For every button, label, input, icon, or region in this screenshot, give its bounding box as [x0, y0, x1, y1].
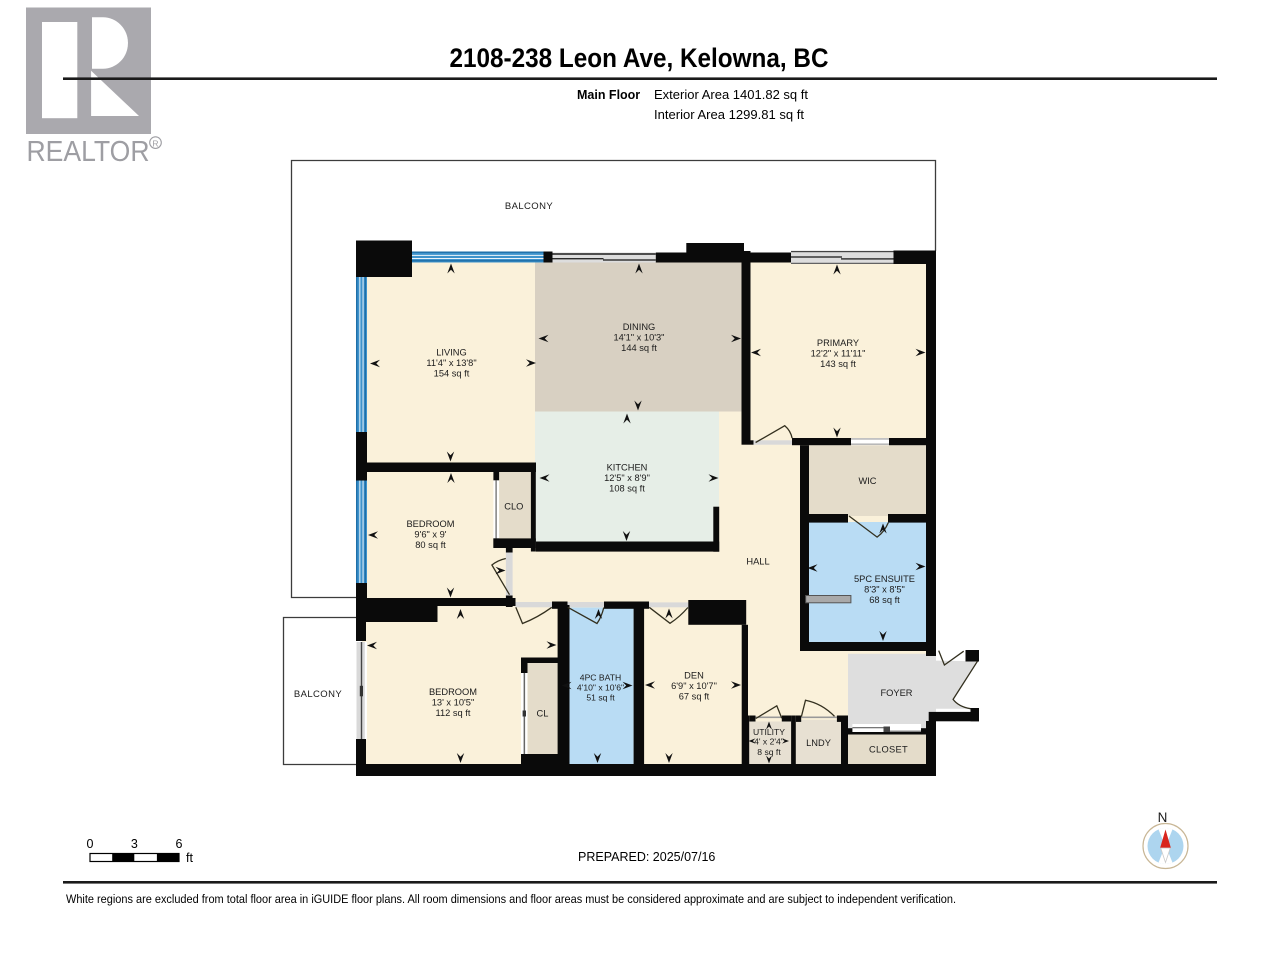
svg-text:PREPARED: 2025/07/16: PREPARED: 2025/07/16	[578, 850, 715, 864]
svg-text:9'6" x 9': 9'6" x 9'	[414, 530, 446, 540]
svg-text:ft: ft	[186, 851, 193, 865]
svg-text:Main Floor: Main Floor	[577, 88, 640, 102]
svg-text:CL: CL	[537, 709, 549, 719]
svg-text:N: N	[1158, 810, 1168, 825]
svg-text:LIVING: LIVING	[436, 348, 466, 358]
svg-text:0: 0	[87, 837, 94, 851]
svg-text:8'3" x 8'5": 8'3" x 8'5"	[864, 584, 905, 594]
svg-text:KITCHEN: KITCHEN	[607, 463, 648, 473]
svg-text:REALTOR: REALTOR	[27, 136, 150, 168]
svg-text:LNDY: LNDY	[806, 738, 831, 748]
svg-text:FOYER: FOYER	[880, 688, 912, 698]
svg-text:BEDROOM: BEDROOM	[429, 687, 477, 697]
svg-text:Exterior Area 1401.82 sq ft: Exterior Area 1401.82 sq ft	[654, 88, 809, 102]
svg-text:6'9" x 10'7": 6'9" x 10'7"	[671, 681, 717, 691]
svg-text:4' x 2'4": 4' x 2'4"	[754, 737, 784, 747]
svg-text:CLO: CLO	[504, 502, 523, 512]
svg-text:CLOSET: CLOSET	[869, 745, 908, 755]
svg-text:4PC BATH: 4PC BATH	[580, 673, 621, 683]
svg-text:DINING: DINING	[623, 322, 656, 332]
svg-text:51 sq ft: 51 sq ft	[586, 693, 615, 703]
svg-text:80 sq ft: 80 sq ft	[415, 540, 446, 550]
svg-text:8 sq ft: 8 sq ft	[757, 747, 781, 757]
svg-text:143 sq ft: 143 sq ft	[820, 359, 856, 369]
svg-text:6: 6	[176, 837, 183, 851]
svg-text:R: R	[152, 139, 158, 149]
svg-text:12'5" x 8'9": 12'5" x 8'9"	[604, 473, 650, 483]
svg-text:14'1" x 10'3": 14'1" x 10'3"	[614, 333, 665, 343]
svg-text:154 sq ft: 154 sq ft	[434, 369, 470, 379]
svg-text:Interior Area 1299.81 sq ft: Interior Area 1299.81 sq ft	[654, 108, 805, 122]
svg-text:13' x 10'5": 13' x 10'5"	[432, 698, 475, 708]
svg-text:White regions are excluded fro: White regions are excluded from total fl…	[66, 892, 956, 906]
svg-text:68 sq ft: 68 sq ft	[869, 595, 900, 605]
svg-text:108 sq ft: 108 sq ft	[609, 484, 645, 494]
svg-text:112 sq ft: 112 sq ft	[436, 708, 471, 718]
svg-text:BALCONY: BALCONY	[294, 689, 342, 700]
svg-text:2108-238 Leon Ave, Kelowna, BC: 2108-238 Leon Ave, Kelowna, BC	[450, 43, 829, 73]
svg-text:3: 3	[131, 837, 138, 851]
svg-text:12'2" x 11'11": 12'2" x 11'11"	[811, 349, 866, 359]
svg-text:67 sq ft: 67 sq ft	[679, 692, 710, 702]
svg-text:5PC ENSUITE: 5PC ENSUITE	[854, 574, 915, 584]
svg-text:BALCONY: BALCONY	[505, 201, 553, 212]
svg-text:BEDROOM: BEDROOM	[406, 519, 454, 529]
svg-text:144 sq ft: 144 sq ft	[621, 343, 657, 353]
svg-text:DEN: DEN	[684, 671, 704, 681]
svg-text:11'4" x 13'8": 11'4" x 13'8"	[426, 358, 476, 368]
svg-text:HALL: HALL	[746, 557, 769, 567]
svg-text:4'10" x 10'6": 4'10" x 10'6"	[577, 683, 624, 693]
svg-text:PRIMARY: PRIMARY	[817, 338, 859, 348]
svg-text:WIC: WIC	[858, 476, 876, 486]
svg-text:UTILITY: UTILITY	[753, 727, 785, 737]
